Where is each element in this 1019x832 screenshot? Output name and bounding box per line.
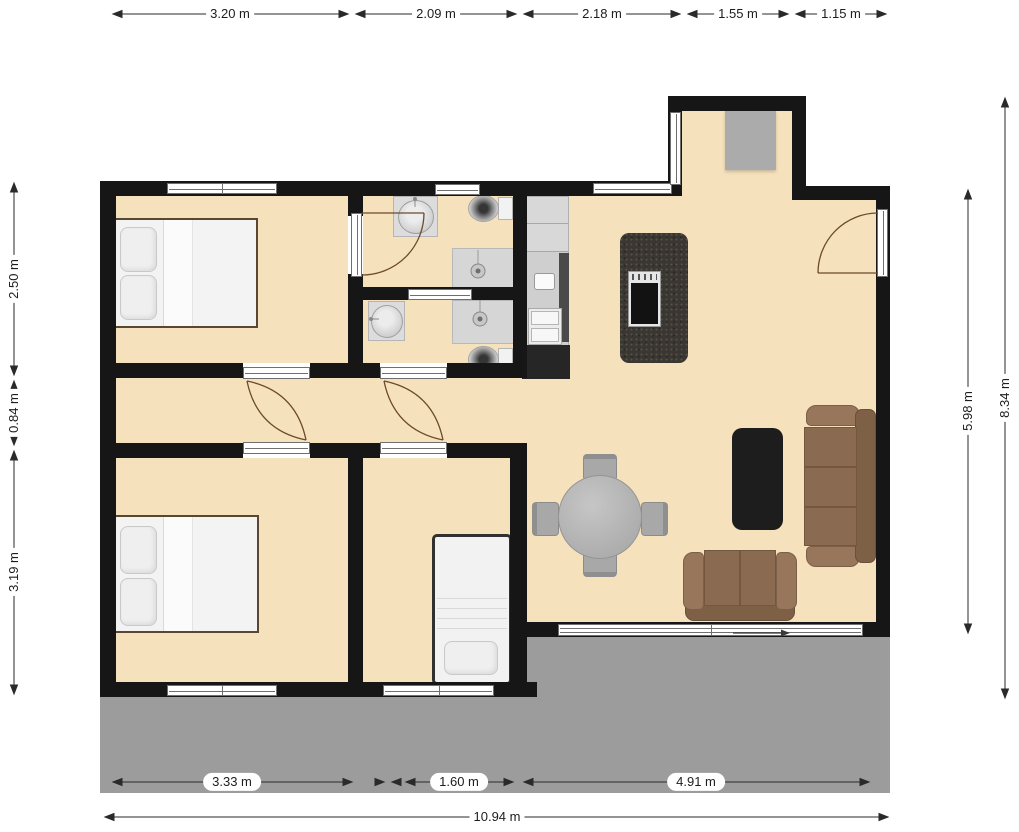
dim-label-top-1: 3.20 m (206, 6, 254, 22)
pillow (120, 275, 157, 320)
dim-label-total-width: 10.94 m (470, 809, 525, 825)
loveseat-cushion (704, 550, 740, 606)
shower-bottom (452, 300, 516, 344)
sofa-cushion (804, 467, 857, 507)
cooktop-controls (632, 274, 657, 280)
bathroom-sink-top (393, 196, 438, 237)
doorframe-line (883, 211, 884, 275)
sofa-cushion (804, 507, 857, 546)
toilet-top (468, 195, 513, 222)
wall-hallway-bottom-1 (116, 443, 243, 458)
dim-label-left-2: 0.84 m (6, 389, 22, 437)
duvet-fold (163, 220, 193, 326)
single-bed (432, 534, 512, 685)
dim-label-right-2: 8.34 m (997, 374, 1013, 422)
doormat (725, 110, 776, 170)
sofa-cushion (804, 427, 857, 467)
loveseat-armrest (683, 552, 704, 610)
cabinet-section (527, 197, 568, 252)
wall-kitchen-upper (513, 196, 527, 378)
window-bedroom-bottom-left (167, 685, 277, 696)
double-bed-top (113, 218, 258, 328)
round-dining-table (558, 475, 642, 559)
doorframe-bathroom (351, 213, 362, 277)
doorframe-entry (877, 209, 888, 277)
wall-hallway-top-2 (310, 363, 380, 378)
sofa-three-seat (802, 405, 876, 567)
doorframe-hallway-2-bottom (380, 442, 447, 454)
window-mullion (439, 686, 440, 695)
doorframe-line (382, 373, 445, 374)
pillow (120, 227, 157, 272)
loveseat-cushion (740, 550, 776, 606)
toilet-bowl (468, 195, 499, 222)
bathroom-sink-bottom (368, 301, 405, 341)
window-pane-line (437, 190, 478, 191)
terrace-patio-right (523, 637, 890, 793)
dim-label-bottom-3: 4.91 m (667, 773, 725, 791)
doorframe-line (357, 215, 358, 275)
sink-basin (398, 200, 434, 234)
pillow (444, 641, 498, 675)
window-bedroom-top (167, 183, 277, 194)
duvet-fold (163, 517, 193, 631)
sofa-armrest (806, 405, 860, 426)
dim-label-left-3: 3.19 m (6, 548, 22, 596)
wall-kitchen-lower (510, 443, 527, 697)
dim-label-top-2: 2.09 m (412, 6, 460, 22)
pillow (120, 578, 157, 626)
window-pane-line (410, 295, 470, 296)
doorframe-hallway-1-top (243, 367, 310, 379)
sliding-door-divider (711, 625, 712, 635)
oven-drawer (531, 328, 559, 342)
doorframe-line (245, 373, 308, 374)
dim-label-bottom-2: 1.60 m (430, 773, 488, 791)
window-bedroom-middle (383, 685, 494, 696)
dim-label-top-5: 1.15 m (817, 6, 865, 22)
floor-hallway (116, 378, 513, 443)
blanket-wrinkles (437, 589, 507, 631)
dining-chair-left (532, 502, 559, 536)
window-entry-nook (670, 112, 681, 185)
doorframe-hallway-1-bottom (243, 442, 310, 454)
window-pane-line (676, 114, 677, 183)
window-mullion (222, 686, 223, 695)
loveseat-armrest (776, 552, 797, 610)
sofa-backrest (855, 409, 876, 563)
wall-exterior-left (100, 181, 116, 697)
cabinet-divider (527, 223, 568, 224)
kitchen-counter-end-dark (522, 345, 570, 379)
kitchen-island (620, 233, 688, 363)
wall-entry-nook-top (668, 96, 806, 111)
doorframe-hallway-2-top (380, 367, 447, 379)
window-pane-line (595, 189, 670, 190)
cooktop-surface (631, 283, 658, 324)
doorframe-line (245, 448, 308, 449)
window-mullion (222, 184, 223, 193)
cooktop (628, 271, 661, 327)
sliding-glass-door (558, 624, 863, 636)
dim-label-top-4: 1.55 m (714, 6, 762, 22)
dining-chair-right (641, 502, 668, 536)
pillow (120, 526, 157, 574)
toilet-tank (498, 197, 513, 220)
doorframe-line (382, 448, 445, 449)
window-bathroom-top (435, 184, 480, 195)
dim-label-bottom-1: 3.33 m (203, 773, 261, 791)
oven (528, 308, 562, 345)
double-bed-bottom (113, 515, 259, 633)
wall-bedrooms-divider (348, 458, 363, 682)
sofa-armrest (806, 546, 860, 567)
sink-basin (371, 305, 403, 338)
window-bathroom-divider (408, 289, 472, 300)
loveseat (683, 550, 797, 623)
wall-entry-nook-right (792, 96, 806, 200)
wall-hallway-top-1 (116, 363, 243, 378)
oven-door (531, 311, 559, 325)
floor-plan-canvas: 3.20 m 2.09 m 2.18 m 1.55 m 1.15 m 2.50 … (0, 0, 1019, 832)
kitchen-sink (534, 273, 555, 290)
window-kitchen-top (593, 183, 672, 194)
dim-label-left-1: 2.50 m (6, 255, 22, 303)
wall-hallway-bottom-2 (310, 443, 380, 458)
dim-label-right-1: 5.98 m (960, 387, 976, 435)
floor-hallway-opening (513, 378, 527, 443)
dim-label-top-3: 2.18 m (578, 6, 626, 22)
coffee-table (732, 428, 783, 530)
kitchen-counter (526, 196, 569, 346)
